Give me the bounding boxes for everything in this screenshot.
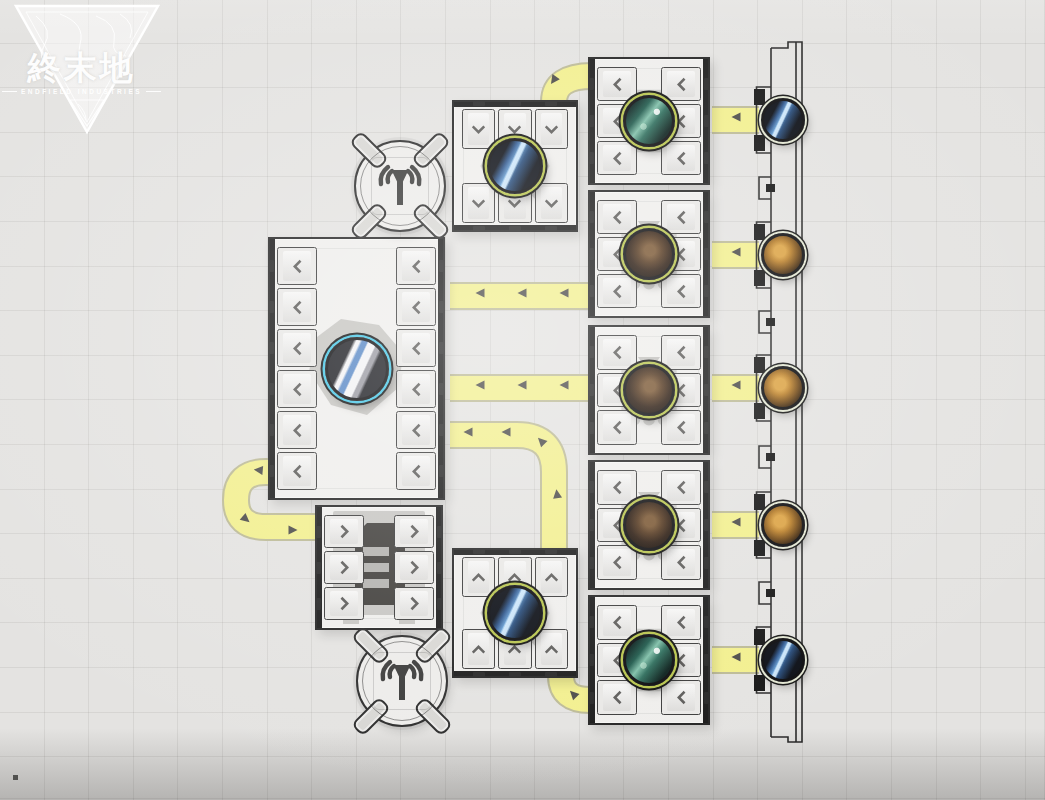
port-tick [589, 285, 594, 297]
chevron-left-icon [674, 77, 689, 92]
io-port[interactable] [277, 288, 317, 326]
map-marker-dot [13, 775, 18, 780]
port-tick [439, 424, 444, 436]
io-port[interactable] [661, 200, 701, 234]
io-port[interactable] [396, 329, 436, 367]
io-port[interactable] [462, 183, 495, 223]
io-port[interactable] [396, 452, 436, 490]
chevron-up-icon [507, 642, 522, 657]
endfield-logo: 終末地 ENDFIELD INDUSTRIES [0, 0, 175, 150]
collector-1[interactable] [588, 190, 710, 318]
port-tick [439, 260, 444, 272]
io-port[interactable] [277, 452, 317, 490]
logo-dash-right [146, 91, 161, 92]
io-port[interactable] [661, 605, 701, 640]
chevron-down-icon [507, 196, 522, 211]
chevron-right-icon [407, 596, 422, 611]
port-tick [589, 78, 594, 90]
chevron-left-icon [674, 114, 689, 129]
port-tick [589, 211, 594, 223]
chevron-up-icon [471, 570, 486, 585]
factory-grid-canvas[interactable]: 終末地 ENDFIELD INDUSTRIES [0, 0, 1045, 800]
chevron-left-icon [674, 151, 689, 166]
port-tick [437, 562, 442, 574]
resource-orb-teal-crystal[interactable] [623, 95, 675, 147]
chevron-left-icon [674, 615, 689, 630]
port-tick [589, 654, 594, 666]
chevron-right-icon [337, 524, 352, 539]
ore-deposit-top[interactable] [452, 100, 578, 232]
chevron-left-icon [610, 555, 625, 570]
port-tick [704, 481, 709, 493]
chevron-left-icon [610, 420, 625, 435]
resource-orb-teal-crystal[interactable] [623, 634, 675, 686]
port-tick [545, 226, 557, 231]
processor-north[interactable] [588, 57, 710, 185]
chevron-left-icon [674, 555, 689, 570]
port-tick [704, 248, 709, 260]
port-tick [473, 226, 485, 231]
port-tick [545, 672, 557, 677]
io-port[interactable] [597, 680, 637, 715]
resource-orb-dark-ore[interactable] [623, 228, 675, 280]
chevron-left-icon [409, 382, 424, 397]
port-tick [439, 465, 444, 477]
port-tick [704, 422, 709, 434]
io-port[interactable] [661, 274, 701, 308]
port-tick [589, 152, 594, 164]
chevron-left-icon [610, 615, 625, 630]
chevron-down-icon [544, 122, 559, 137]
chevron-left-icon [610, 480, 625, 495]
port-tick [589, 384, 594, 396]
wall-node-orb-amber-ore[interactable] [761, 366, 805, 410]
chevron-left-icon [409, 259, 424, 274]
chevron-left-icon [290, 300, 305, 315]
signal-relay-south[interactable] [356, 635, 448, 727]
chevron-left-icon [290, 464, 305, 479]
chevron-left-icon [610, 284, 625, 299]
wall-node-orb-amber-ore[interactable] [761, 233, 805, 277]
port-tick [589, 115, 594, 127]
port-tick [269, 383, 274, 395]
port-tick [545, 101, 557, 106]
io-port[interactable] [597, 470, 637, 505]
io-port[interactable] [597, 605, 637, 640]
port-tick [704, 616, 709, 628]
io-port[interactable] [661, 335, 701, 370]
io-port[interactable] [277, 370, 317, 408]
chevron-down-icon [471, 122, 486, 137]
chevron-left-icon [610, 690, 625, 705]
io-port[interactable] [597, 200, 637, 234]
port-tick [509, 226, 521, 231]
chevron-left-icon [610, 345, 625, 360]
ore-deposit-bottom[interactable] [452, 548, 578, 678]
port-group-right [396, 247, 436, 490]
chevron-left-icon [610, 210, 625, 225]
port-tick [439, 383, 444, 395]
io-port[interactable] [597, 545, 637, 580]
chevron-left-icon [674, 210, 689, 225]
io-port[interactable] [535, 183, 568, 223]
port-tick [589, 519, 594, 531]
port-tick [704, 346, 709, 358]
chevron-left-icon [290, 341, 305, 356]
io-port[interactable] [661, 67, 701, 101]
port-tick [704, 654, 709, 666]
collector-2[interactable] [588, 325, 710, 455]
chevron-right-icon [337, 596, 352, 611]
chevron-left-icon [290, 423, 305, 438]
port-tick [589, 692, 594, 704]
chevron-left-icon [674, 653, 689, 668]
chevron-left-icon [674, 480, 689, 495]
logo-title: 終末地 [0, 46, 163, 91]
chevron-left-icon [674, 420, 689, 435]
port-tick [589, 481, 594, 493]
port-tick [269, 465, 274, 477]
collector-3[interactable] [588, 460, 710, 590]
io-port[interactable] [462, 557, 495, 597]
resource-orb-dark-ore[interactable] [623, 364, 675, 416]
port-tick [704, 78, 709, 90]
port-tick [704, 557, 709, 569]
io-port[interactable] [462, 109, 495, 149]
io-port[interactable] [324, 551, 364, 584]
wall-node-orb-blue-crystal[interactable] [761, 98, 805, 142]
io-port[interactable] [535, 109, 568, 149]
io-port[interactable] [277, 329, 317, 367]
io-port[interactable] [661, 141, 701, 175]
wall-node-orb-amber-ore[interactable] [761, 503, 805, 547]
chevron-left-icon [674, 690, 689, 705]
chevron-right-icon [407, 524, 422, 539]
io-port[interactable] [324, 515, 364, 548]
chevron-down-icon [507, 122, 522, 137]
broadcast-icon [358, 637, 446, 725]
resource-orb-dark-ore[interactable] [623, 499, 675, 551]
resource-orb-blue-crystal[interactable] [487, 138, 543, 194]
chevron-left-icon [674, 284, 689, 299]
port-tick [316, 526, 321, 538]
chevron-left-icon [409, 464, 424, 479]
port-group-right [394, 515, 434, 620]
io-port[interactable] [597, 141, 637, 175]
io-port[interactable] [396, 411, 436, 449]
processor-south[interactable] [588, 595, 710, 725]
chevron-left-icon [674, 383, 689, 398]
logo-dash-left [2, 91, 17, 92]
io-port[interactable] [661, 680, 701, 715]
chevron-down-icon [471, 196, 486, 211]
chevron-up-icon [544, 570, 559, 585]
chevron-down-icon [544, 196, 559, 211]
io-port[interactable] [394, 551, 434, 584]
chevron-up-icon [507, 570, 522, 585]
broadcast-icon [356, 142, 444, 230]
signal-relay-north[interactable] [354, 140, 446, 232]
io-port[interactable] [324, 587, 364, 620]
port-tick [704, 692, 709, 704]
io-port[interactable] [661, 470, 701, 505]
logo-subtitle-text: ENDFIELD INDUSTRIES [21, 88, 142, 95]
chevron-up-icon [471, 642, 486, 657]
io-port[interactable] [597, 274, 637, 308]
port-tick [439, 342, 444, 354]
port-group-left [277, 247, 317, 490]
port-tick [545, 549, 557, 554]
port-tick [704, 285, 709, 297]
storage-depot[interactable] [268, 237, 445, 500]
port-tick [473, 549, 485, 554]
port-tick [437, 526, 442, 538]
io-port[interactable] [277, 247, 317, 285]
wall-node-orb-blue-crystal[interactable] [761, 638, 805, 682]
port-tick [509, 672, 521, 677]
io-port[interactable] [535, 629, 568, 669]
smelter[interactable] [315, 505, 443, 630]
chevron-left-icon [610, 77, 625, 92]
chevron-up-icon [544, 642, 559, 657]
port-tick [589, 616, 594, 628]
port-tick [269, 424, 274, 436]
port-tick [704, 384, 709, 396]
port-tick [473, 101, 485, 106]
chevron-left-icon [409, 423, 424, 438]
chevron-left-icon [674, 518, 689, 533]
port-tick [589, 422, 594, 434]
port-tick [704, 115, 709, 127]
port-tick [437, 598, 442, 610]
port-tick [269, 260, 274, 272]
io-port[interactable] [597, 335, 637, 370]
port-tick [269, 342, 274, 354]
port-tick [509, 549, 521, 554]
port-tick [589, 346, 594, 358]
port-tick [439, 301, 444, 313]
port-tick [704, 519, 709, 531]
io-port[interactable] [396, 288, 436, 326]
chevron-left-icon [290, 382, 305, 397]
chevron-right-icon [407, 560, 422, 575]
io-port[interactable] [462, 629, 495, 669]
port-tick [589, 248, 594, 260]
chevron-left-icon [674, 247, 689, 262]
io-port[interactable] [597, 67, 637, 101]
resource-orb-white-device[interactable] [325, 337, 389, 401]
io-port[interactable] [661, 410, 701, 445]
io-port[interactable] [661, 545, 701, 580]
chevron-left-icon [409, 341, 424, 356]
chevron-left-icon [674, 345, 689, 360]
io-port[interactable] [277, 411, 317, 449]
chevron-left-icon [409, 300, 424, 315]
port-tick [704, 211, 709, 223]
port-tick [316, 562, 321, 574]
io-port[interactable] [396, 247, 436, 285]
io-port[interactable] [394, 515, 434, 548]
chevron-left-icon [610, 151, 625, 166]
port-group-left [324, 515, 364, 620]
chevron-right-icon [337, 560, 352, 575]
chevron-left-icon [290, 259, 305, 274]
io-port[interactable] [597, 410, 637, 445]
port-tick [269, 301, 274, 313]
port-tick [473, 672, 485, 677]
port-tick [704, 152, 709, 164]
resource-orb-blue-crystal[interactable] [487, 585, 543, 641]
logo-subtitle: ENDFIELD INDUSTRIES [2, 88, 161, 95]
port-tick [316, 598, 321, 610]
io-port[interactable] [535, 557, 568, 597]
port-tick [509, 101, 521, 106]
io-port[interactable] [396, 370, 436, 408]
port-tick [589, 557, 594, 569]
io-port[interactable] [394, 587, 434, 620]
